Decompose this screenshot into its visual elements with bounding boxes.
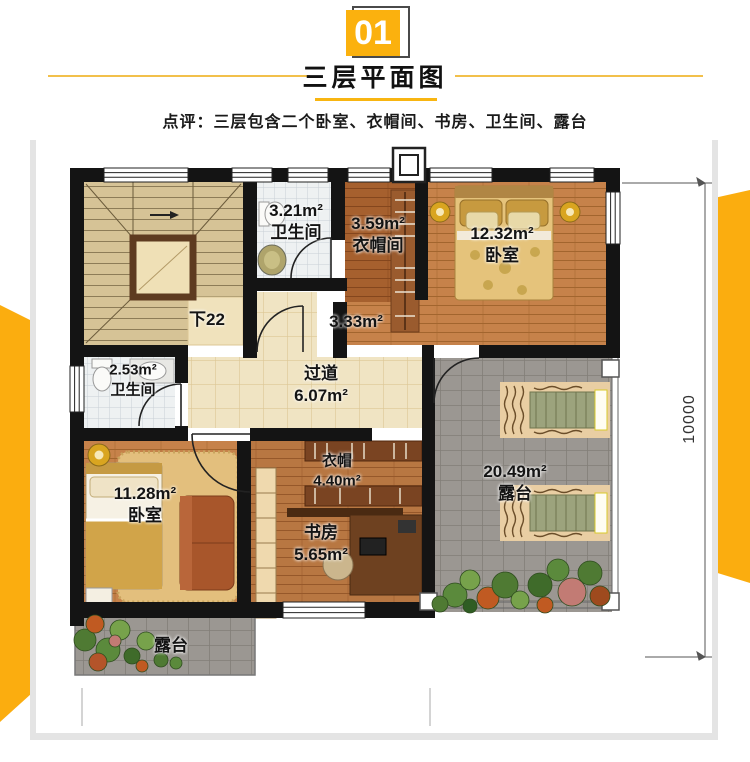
window-icon <box>606 192 620 244</box>
sink-icon <box>258 245 286 275</box>
bookshelf <box>256 468 276 618</box>
window-icon <box>430 168 492 182</box>
window-icon <box>104 168 188 182</box>
sofa <box>180 496 234 590</box>
lounge-set <box>500 382 610 438</box>
toilet-icon <box>92 359 112 391</box>
wardrobe-rack <box>391 190 419 332</box>
chimney-icon <box>393 148 425 182</box>
page: 01 三层平面图 点评：三层包含二个卧室、衣帽间、书房、卫生间、露台 <box>0 0 750 762</box>
window-icon <box>232 168 272 182</box>
wall-lamp-glow <box>566 208 574 216</box>
lamp-glow <box>95 451 104 460</box>
bed <box>86 463 162 589</box>
toilet-icon <box>259 202 285 226</box>
window-icon <box>550 168 594 182</box>
lounge-set <box>500 485 610 541</box>
desk <box>350 515 422 595</box>
window-icon <box>70 366 84 412</box>
floor-plan <box>0 0 750 762</box>
wall-lamp-glow <box>436 208 444 216</box>
window-icon <box>283 602 365 618</box>
chair-icon <box>323 550 353 580</box>
sink-icon <box>130 359 174 383</box>
window-icon <box>348 168 390 182</box>
window-icon <box>288 168 328 182</box>
double-bed <box>455 186 553 300</box>
